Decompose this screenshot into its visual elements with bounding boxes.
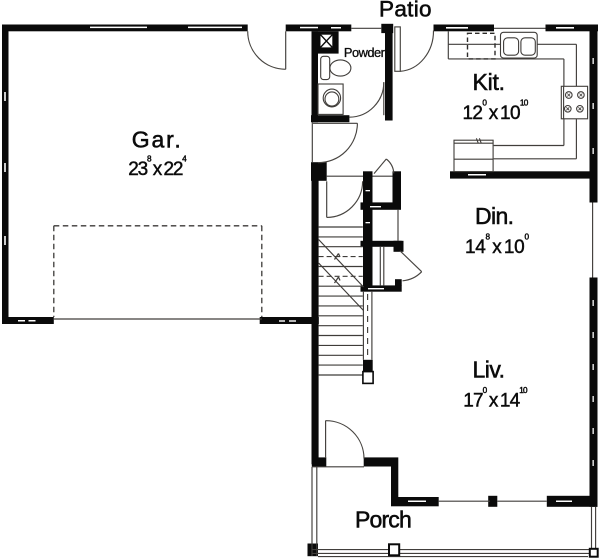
svg-text:Porch: Porch: [355, 507, 412, 533]
svg-text:Kit.: Kit.: [473, 69, 506, 95]
svg-text:148x100: 148x100: [465, 233, 529, 259]
svg-text:Powder: Powder: [344, 45, 386, 60]
svg-text:120x1010: 120x1010: [463, 99, 529, 125]
svg-text:Liv.: Liv.: [473, 357, 506, 383]
svg-text:Patio: Patio: [379, 0, 432, 21]
svg-text:Gar.: Gar.: [132, 127, 181, 153]
svg-text:238x224: 238x224: [128, 155, 187, 181]
svg-text:170x1410: 170x1410: [463, 386, 528, 412]
svg-text:Din.: Din.: [475, 203, 514, 229]
